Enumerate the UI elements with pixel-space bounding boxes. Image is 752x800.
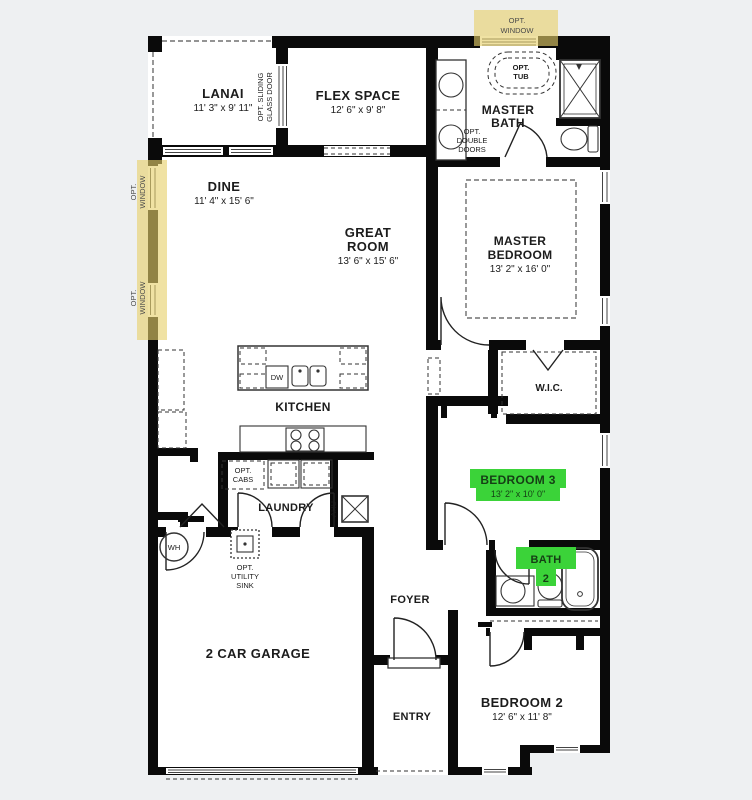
opt-double-doors-label-1: OPT.	[464, 127, 481, 136]
room-label-kitchen: KITCHEN	[275, 400, 330, 414]
room-dims-master-bedroom: 13' 2" x 16' 0"	[490, 264, 551, 275]
opt-window-top-label-2: WINDOW	[501, 26, 535, 35]
front-door-sill	[388, 658, 440, 668]
room-dims-bedroom2: 12' 6" x 11' 8"	[492, 712, 552, 723]
room-label-dine: DINE	[208, 179, 241, 194]
opt-window-top-label-1: OPT.	[509, 16, 526, 25]
opt-window-left-upper-label-1: OPT.	[129, 184, 138, 201]
water-heater-label: WH	[168, 543, 181, 552]
opt-window-left-lower-label-1: OPT.	[129, 290, 138, 307]
room-label-flex-space: FLEX SPACE	[316, 88, 401, 103]
room-label-laundry: LAUNDRY	[258, 502, 314, 514]
opt-sliding-glass-door-label-2: GLASS DOOR	[265, 72, 274, 122]
room-label-lanai: LANAI	[202, 86, 244, 101]
room-dims-lanai: 11' 3" x 9' 11"	[194, 103, 253, 114]
room-label-master-bedroom-2: BEDROOM	[488, 248, 553, 262]
opt-window-left-upper-label-2: WINDOW	[138, 175, 147, 209]
room-label-great-room-1: GREAT	[345, 225, 392, 240]
room-label-entry: ENTRY	[393, 711, 432, 723]
opt-double-doors-label-3: DOORS	[458, 145, 486, 154]
opt-cabs-label-2: CABS	[233, 475, 253, 484]
opt-tub-label-2: TUB	[513, 72, 529, 81]
room-label-garage: 2 CAR GARAGE	[206, 646, 310, 661]
opt-sliding-glass-door-label-1: OPT. SLIDING	[256, 72, 265, 121]
room-dims-dine: 11' 4" x 15' 6"	[194, 196, 254, 207]
room-label-master-bedroom-1: MASTER	[494, 234, 546, 248]
opt-utility-sink-label-1: OPT.	[237, 563, 254, 572]
utility-sink-drain	[243, 542, 246, 545]
room-label-bedroom3: BEDROOM 3	[480, 473, 555, 487]
room-label-master-bath-1: MASTER	[482, 103, 534, 117]
floor-plan-page: LANAI 11' 3" x 9' 11" FLEX SPACE 12' 6" …	[0, 0, 752, 800]
sink-drain-1	[298, 369, 301, 372]
room-label-wic: W.I.C.	[535, 383, 562, 394]
room-label-bedroom2: BEDROOM 2	[481, 695, 563, 710]
room-label-bath2-1: BATH	[531, 554, 562, 566]
room-label-bath2-2: 2	[543, 573, 549, 585]
room-dims-flex-space: 12' 6" x 9' 8"	[331, 105, 386, 116]
opt-tub-label-1: OPT.	[513, 63, 530, 72]
floor-plan-svg: LANAI 11' 3" x 9' 11" FLEX SPACE 12' 6" …	[0, 0, 752, 800]
opt-cabs-label-1: OPT.	[235, 466, 252, 475]
opt-double-doors-label-2: DOUBLE	[457, 136, 488, 145]
room-label-foyer: FOYER	[390, 594, 429, 606]
dishwasher-label: DW	[271, 373, 284, 382]
ahu-label: AHU	[329, 501, 338, 517]
room-label-master-bath-2: BATH	[491, 116, 525, 130]
room-dims-bedroom3: 13' 2" x 10' 0"	[491, 489, 545, 499]
opt-utility-sink-label-3: SINK	[236, 581, 254, 590]
sink-drain-2	[316, 369, 319, 372]
room-dims-great-room: 13' 6" x 15' 6"	[338, 256, 399, 267]
opt-window-left-lower-label-2: WINDOW	[138, 281, 147, 315]
opt-utility-sink-label-2: UTILITY	[231, 572, 259, 581]
room-label-great-room-2: ROOM	[347, 239, 389, 254]
